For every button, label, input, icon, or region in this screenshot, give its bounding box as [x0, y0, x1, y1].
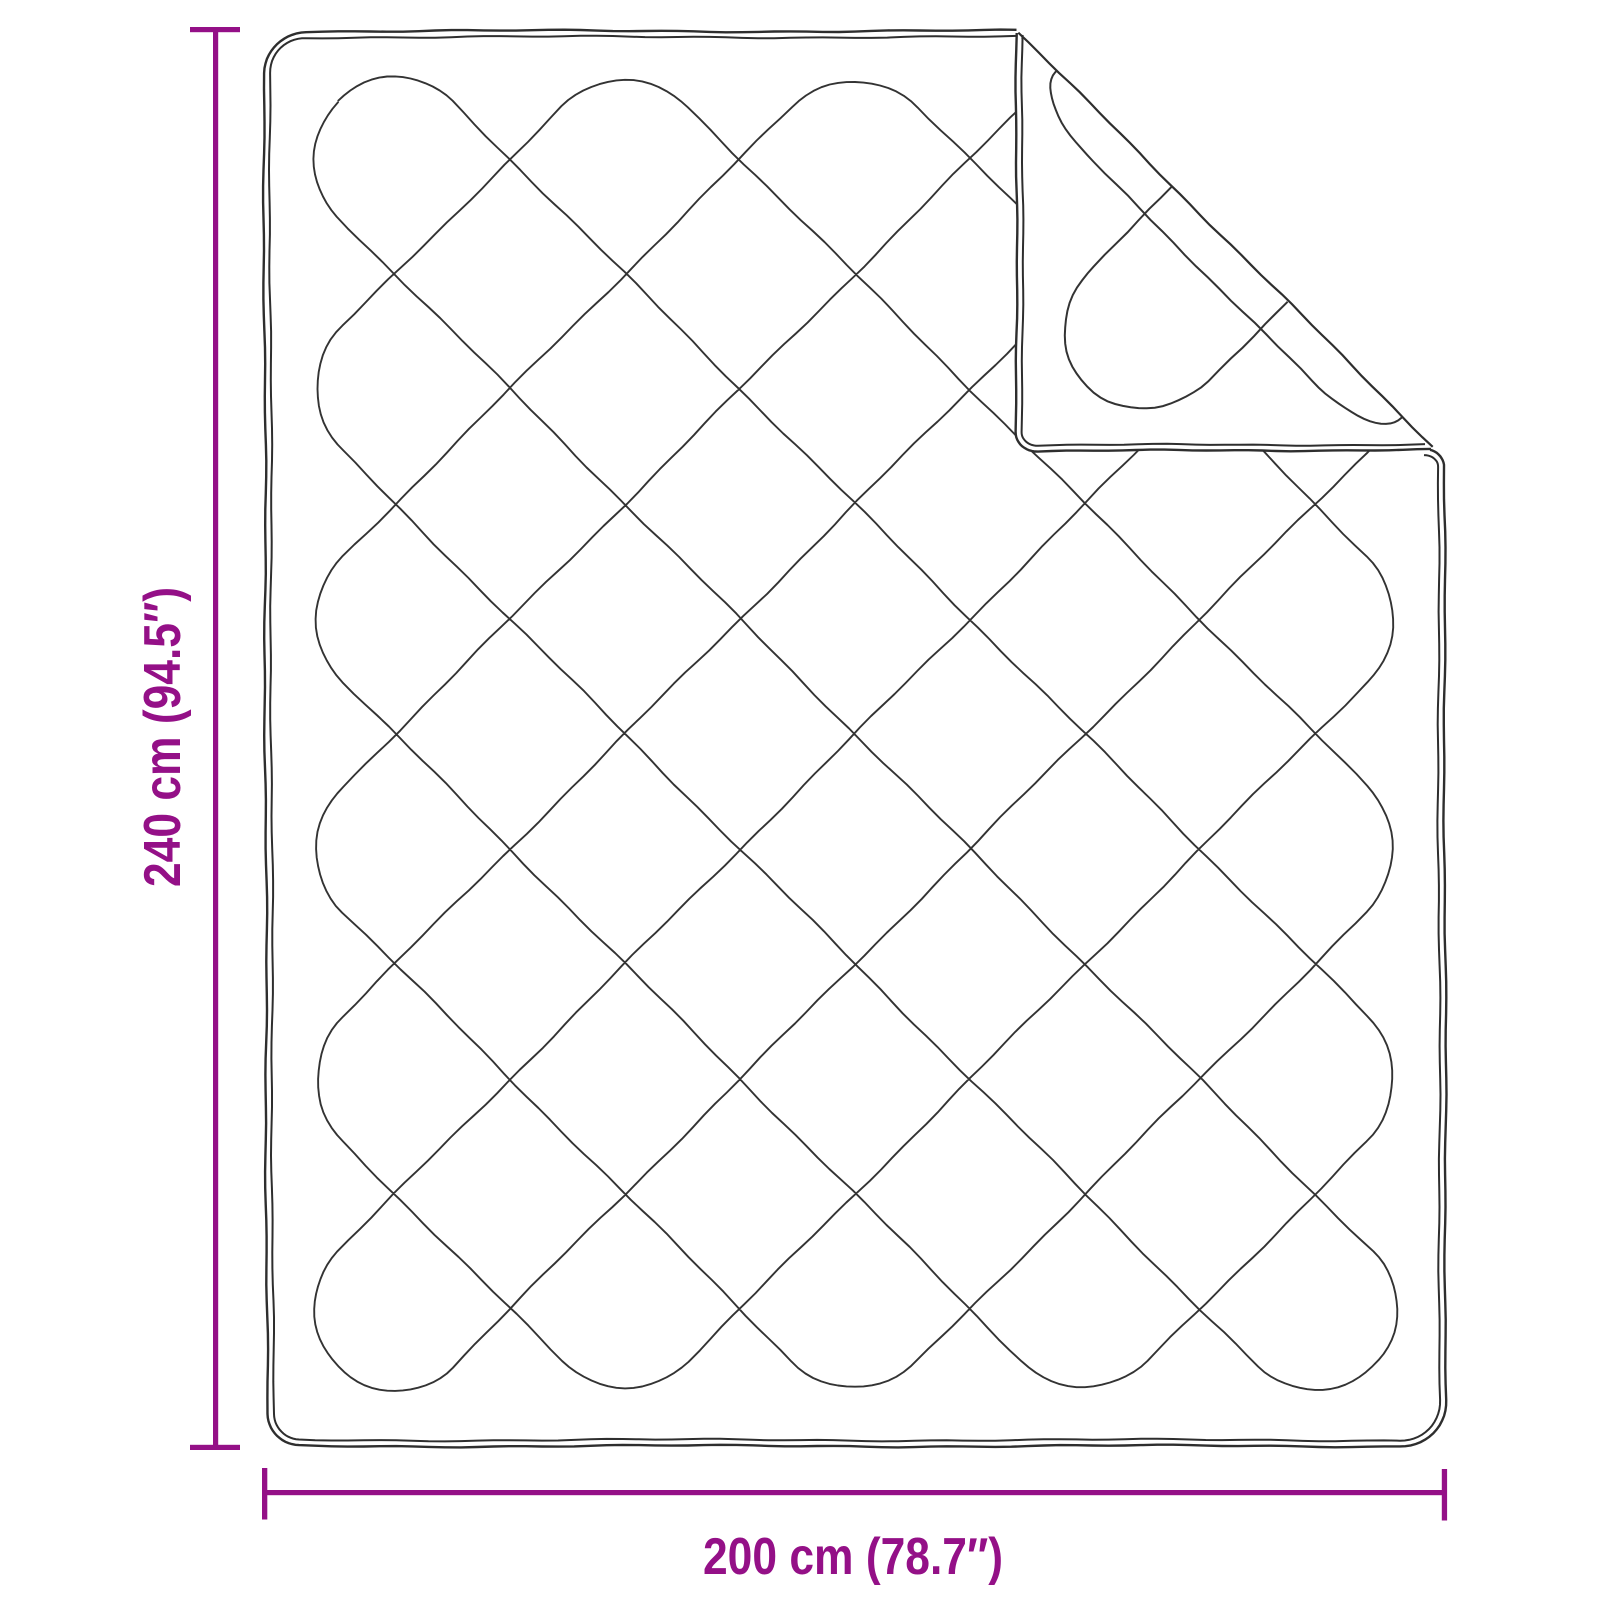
svg-text:240 cm (94.5″): 240 cm (94.5″) [134, 587, 192, 887]
svg-text:200 cm (78.7″): 200 cm (78.7″) [703, 1528, 1003, 1586]
